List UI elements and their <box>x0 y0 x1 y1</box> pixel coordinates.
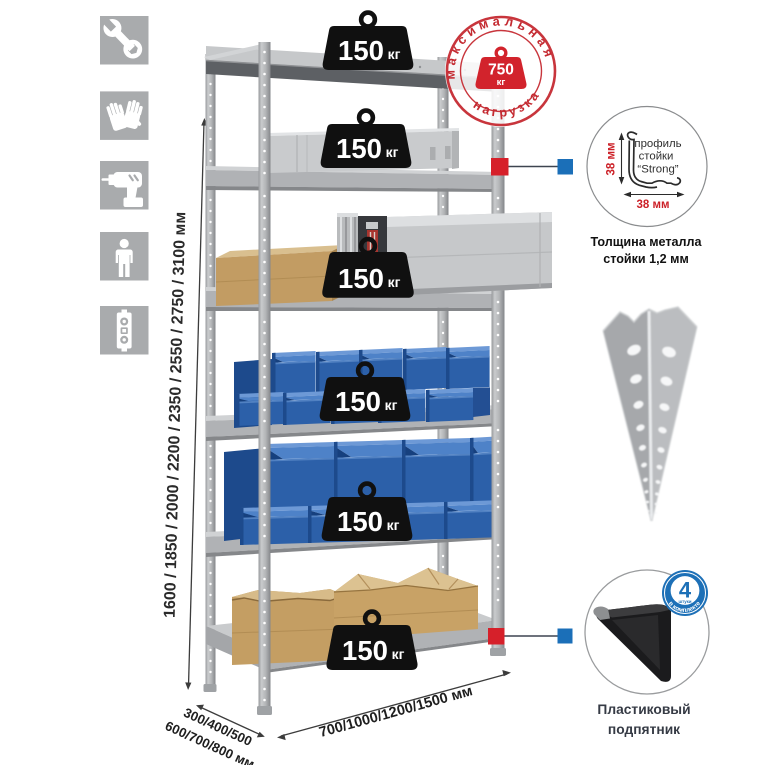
svg-text:штуки: штуки <box>679 599 692 604</box>
svg-text:стойки: стойки <box>639 151 674 163</box>
svg-text:150: 150 <box>335 386 381 417</box>
svg-text:“Strong”: “Strong” <box>637 164 678 176</box>
svg-text:150: 150 <box>338 263 384 294</box>
svg-text:Толщина металла: Толщина металла <box>590 235 702 249</box>
svg-text:подпятник: подпятник <box>608 722 680 737</box>
svg-text:кг: кг <box>392 646 405 662</box>
svg-text:750: 750 <box>488 62 514 79</box>
svg-text:кг: кг <box>385 397 398 413</box>
svg-text:150: 150 <box>337 506 383 537</box>
svg-text:кг: кг <box>386 144 399 160</box>
svg-text:кг: кг <box>388 46 401 62</box>
svg-text:38 мм: 38 мм <box>606 142 618 175</box>
svg-text:150: 150 <box>342 635 388 666</box>
svg-text:150: 150 <box>336 133 382 164</box>
svg-text:кг: кг <box>497 77 506 88</box>
svg-text:38 мм: 38 мм <box>636 199 669 211</box>
svg-text:Пластиковый: Пластиковый <box>597 702 690 717</box>
svg-text:профиль: профиль <box>634 138 681 150</box>
svg-text:150: 150 <box>338 35 384 66</box>
svg-text:стойки 1,2 мм: стойки 1,2 мм <box>603 252 689 266</box>
svg-text:кг: кг <box>387 517 400 533</box>
svg-text:кг: кг <box>388 274 401 290</box>
